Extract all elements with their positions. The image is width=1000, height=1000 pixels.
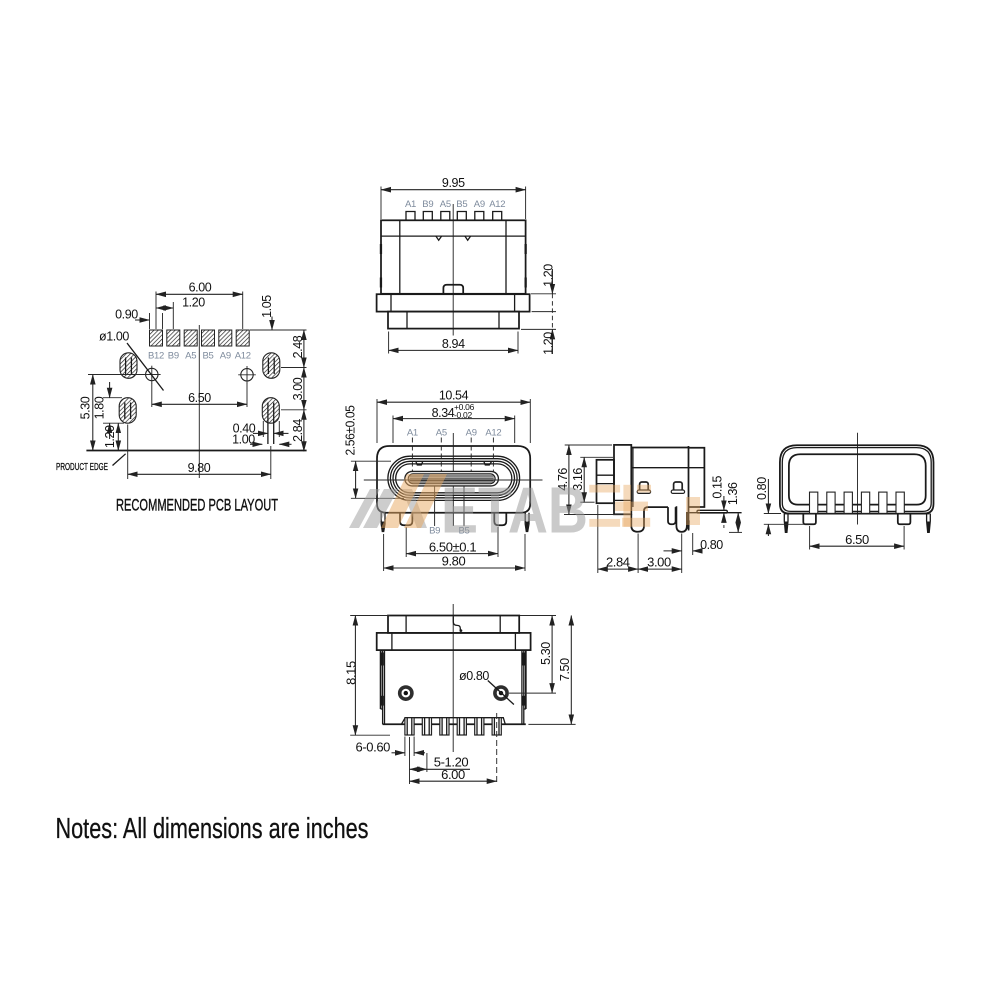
svg-text:A12: A12 <box>235 351 251 362</box>
svg-text:A1: A1 <box>407 427 418 438</box>
svg-text:2.84: 2.84 <box>291 419 305 442</box>
svg-text:RECOMMENDED PCB LAYOUT: RECOMMENDED PCB LAYOUT <box>116 496 278 515</box>
svg-text:A5: A5 <box>436 427 447 438</box>
svg-text:A9: A9 <box>474 199 485 210</box>
svg-text:6.00: 6.00 <box>441 767 465 782</box>
svg-text:0.80: 0.80 <box>700 538 723 552</box>
svg-text:2.48: 2.48 <box>291 335 305 358</box>
svg-text:B5: B5 <box>202 351 213 362</box>
svg-text:B9: B9 <box>429 526 440 537</box>
svg-text:A12: A12 <box>489 199 505 210</box>
svg-text:ø0.80: ø0.80 <box>459 669 489 683</box>
svg-text:8.94: 8.94 <box>442 337 465 351</box>
svg-text:0.80: 0.80 <box>755 477 769 500</box>
svg-text:3.00: 3.00 <box>291 377 305 400</box>
svg-text:A9: A9 <box>220 351 231 362</box>
svg-text:5.30: 5.30 <box>539 642 553 665</box>
svg-text:A5: A5 <box>185 351 196 362</box>
svg-text:6.00: 6.00 <box>189 281 212 295</box>
svg-text:A1: A1 <box>405 199 416 210</box>
svg-text:9.95: 9.95 <box>442 176 465 190</box>
svg-text:-0.02: -0.02 <box>454 410 472 420</box>
svg-text:1.80: 1.80 <box>93 396 107 419</box>
svg-text:6-0.60: 6-0.60 <box>356 739 391 754</box>
svg-text:9.80: 9.80 <box>188 461 211 475</box>
svg-text:B9: B9 <box>422 199 433 210</box>
svg-text:2.56±0.05: 2.56±0.05 <box>344 405 358 455</box>
svg-text:5.30: 5.30 <box>79 396 93 419</box>
svg-text:6.50: 6.50 <box>845 532 869 547</box>
svg-text:ETAB: ETAB <box>441 474 588 547</box>
svg-text:1.20: 1.20 <box>182 296 205 310</box>
svg-text:8.15: 8.15 <box>344 661 359 685</box>
svg-text:A9: A9 <box>466 427 477 438</box>
svg-text:1.36: 1.36 <box>726 482 740 505</box>
svg-text:B12: B12 <box>148 351 164 362</box>
svg-text:A12: A12 <box>485 427 501 438</box>
svg-text:Notes: All dimensions are inch: Notes: All dimensions are inches <box>56 813 369 845</box>
svg-text:A5: A5 <box>440 199 451 210</box>
svg-text:2.84: 2.84 <box>606 554 630 569</box>
svg-text:1.20: 1.20 <box>103 425 117 448</box>
svg-text:8.34: 8.34 <box>432 406 455 420</box>
svg-text:10.54: 10.54 <box>439 388 469 402</box>
svg-text:0.90: 0.90 <box>115 308 138 322</box>
svg-text:ø1.00: ø1.00 <box>99 330 129 344</box>
svg-text:PRODUCT EDGE: PRODUCT EDGE <box>56 462 108 473</box>
svg-text:9.80: 9.80 <box>442 554 466 569</box>
svg-text:1.20: 1.20 <box>542 264 556 287</box>
svg-text:1.00: 1.00 <box>232 433 255 447</box>
svg-text:1.20: 1.20 <box>542 332 556 355</box>
svg-text:B5: B5 <box>456 199 467 210</box>
svg-text:B9: B9 <box>168 351 179 362</box>
svg-text:0.15: 0.15 <box>710 475 724 498</box>
svg-text:6.50: 6.50 <box>188 391 211 405</box>
svg-text:7.50: 7.50 <box>558 658 572 681</box>
svg-text:3.00: 3.00 <box>647 554 671 569</box>
svg-text:1.05: 1.05 <box>260 295 274 318</box>
